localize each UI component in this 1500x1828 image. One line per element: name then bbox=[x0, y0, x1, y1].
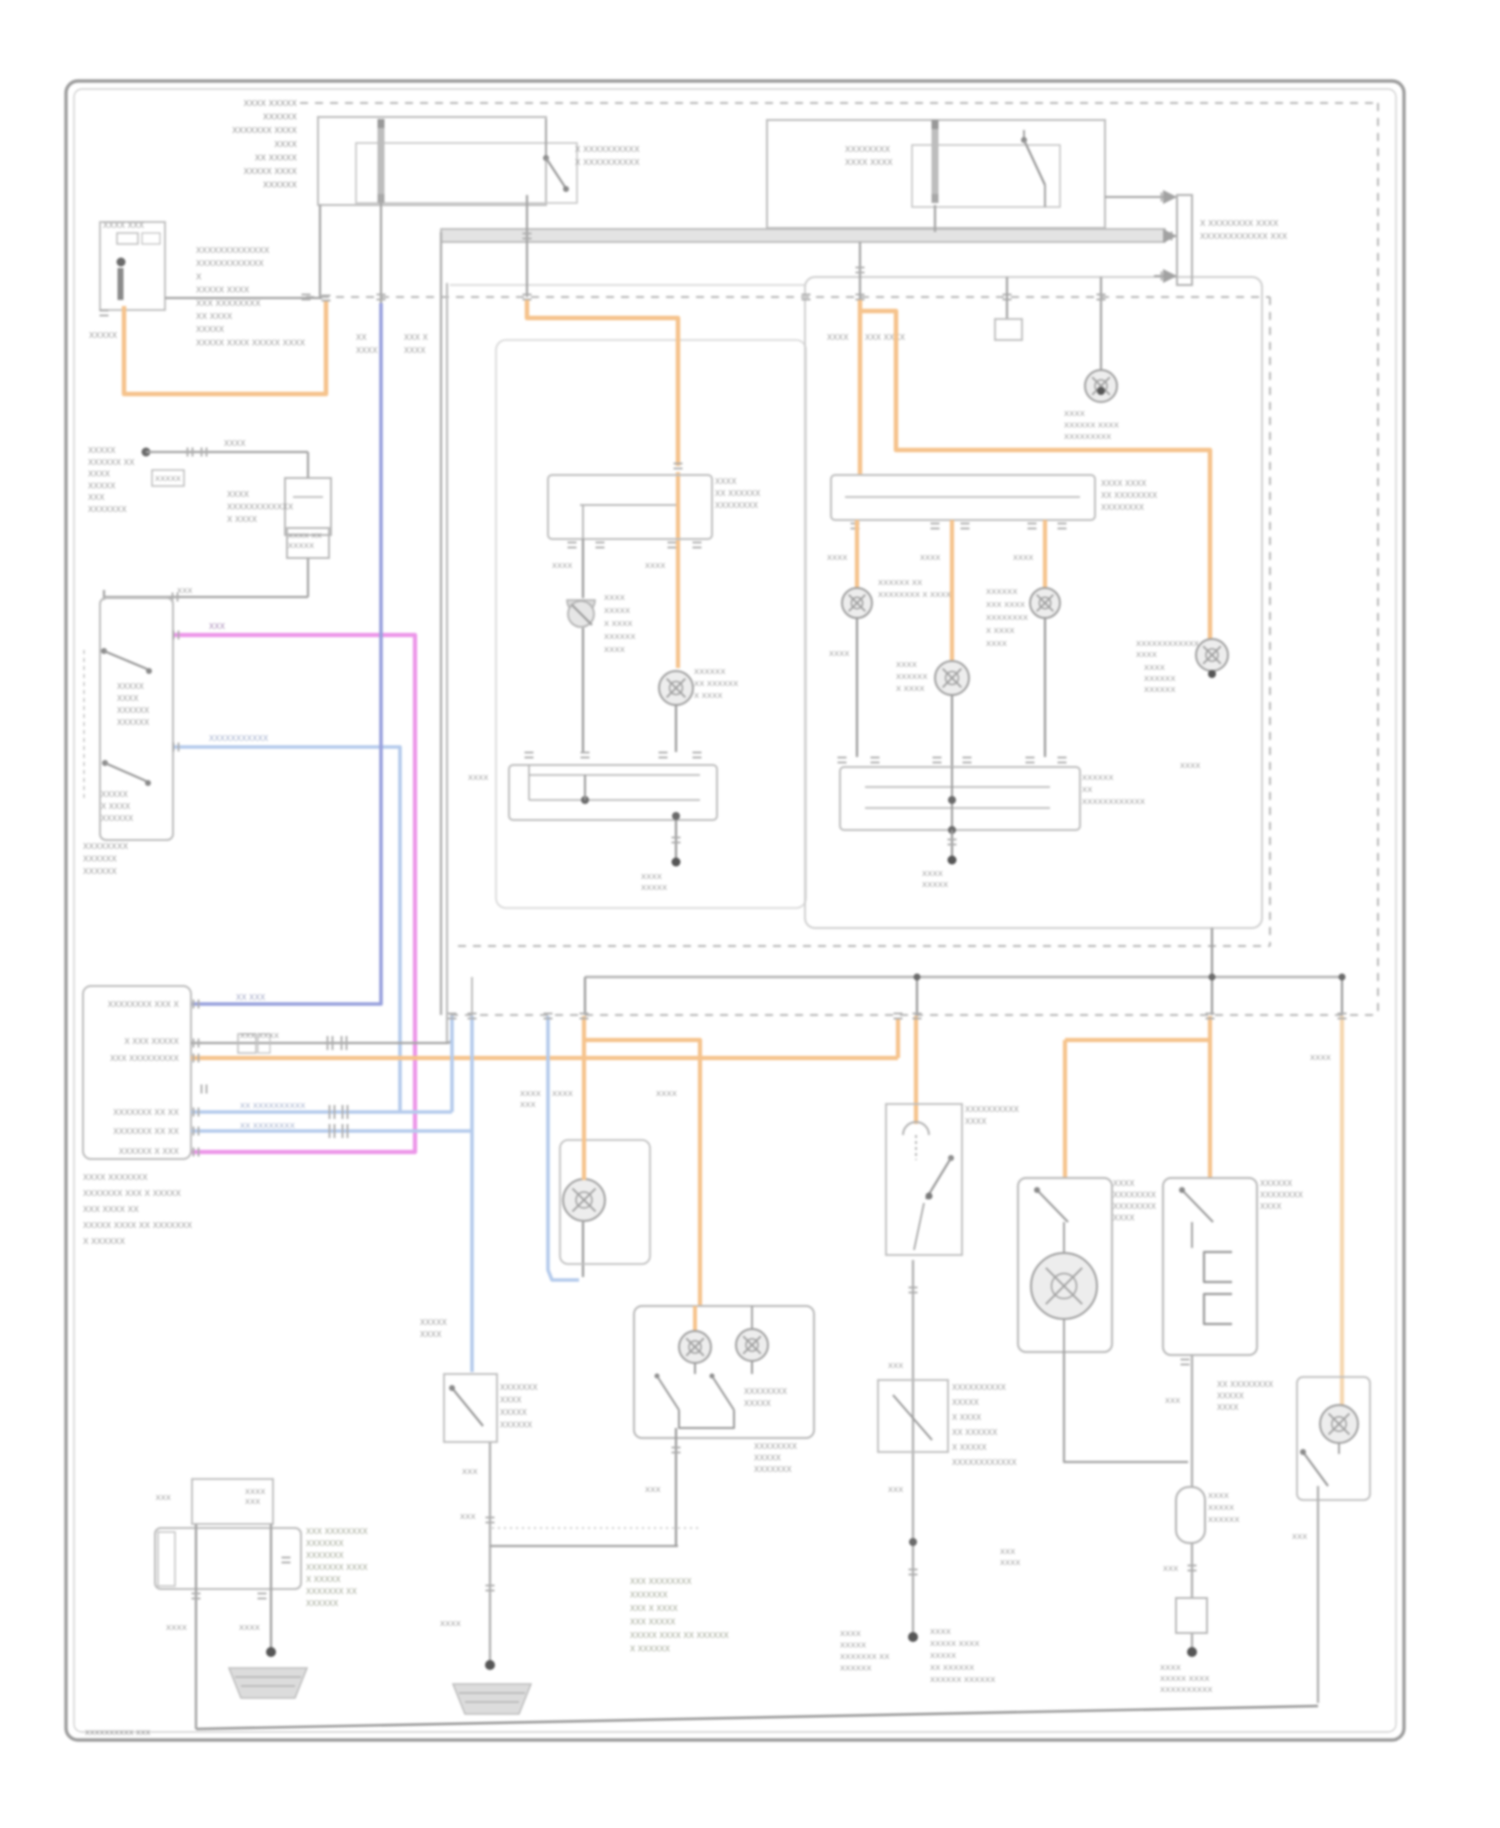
svg-text:XXXXXXXXXXXX: XXXXXXXXXXXX bbox=[1082, 797, 1145, 806]
svg-text:XXXXX: XXXXX bbox=[754, 1454, 782, 1463]
svg-text:XXXXXXX: XXXXXXX bbox=[306, 1539, 344, 1548]
svg-text:XXXXX: XXXXX bbox=[952, 1398, 980, 1407]
svg-text:XXXX XX: XXXX XX bbox=[288, 531, 322, 540]
svg-text:XXXX: XXXX bbox=[1013, 553, 1034, 562]
svg-text:XXXXX XXXX XXXXX XXXX: XXXXX XXXX XXXXX XXXX bbox=[196, 338, 306, 347]
svg-text:XX XXX: XX XXX bbox=[236, 993, 266, 1002]
svg-text:XXXX: XXXX bbox=[840, 1629, 861, 1638]
svg-text:XXXX: XXXX bbox=[965, 1117, 987, 1126]
svg-text:XXXX: XXXX bbox=[224, 439, 246, 448]
svg-text:XXXXXX X XXX: XXXXXX X XXX bbox=[119, 1147, 180, 1156]
svg-text:XX XXXX: XX XXXX bbox=[196, 312, 233, 321]
svg-text:XXXX: XXXX bbox=[468, 773, 489, 782]
svg-text:XXX: XXX bbox=[888, 1485, 903, 1494]
svg-text:XXXXXX: XXXXXX bbox=[1144, 674, 1176, 683]
svg-text:XXXX: XXXX bbox=[930, 1627, 951, 1636]
svg-text:XXX: XXX bbox=[520, 1100, 536, 1109]
svg-text:X XXXXXX: X XXXXXX bbox=[83, 1237, 125, 1246]
svg-text:XXX XXXXX: XXX XXXXX bbox=[630, 1618, 676, 1627]
svg-text:XX XXXXXX: XX XXXXXX bbox=[952, 1428, 998, 1437]
svg-text:XXXXXXXX: XXXXXXXX bbox=[1113, 1191, 1157, 1200]
svg-text:XXXXXX: XXXXXX bbox=[101, 814, 134, 823]
svg-text:XXXX: XXXX bbox=[645, 561, 666, 570]
svg-text:XXXX: XXXX bbox=[1136, 650, 1157, 659]
svg-text:X XXXXXXXXXX: X XXXXXXXXXX bbox=[575, 145, 640, 154]
svg-text:XXX: XXX bbox=[1000, 1547, 1015, 1556]
svg-text:XXX: XXX bbox=[156, 1493, 171, 1502]
svg-text:X XXXXXX: X XXXXXX bbox=[630, 1645, 671, 1654]
svg-text:X XXXXXXXXXX: X XXXXXXXXXX bbox=[575, 158, 640, 167]
svg-text:XXXXXX: XXXXXX bbox=[694, 667, 726, 676]
svg-text:XXXXX: XXXXX bbox=[88, 481, 116, 490]
svg-text:XXXX: XXXX bbox=[920, 553, 941, 562]
svg-text:XXX: XXX bbox=[245, 1497, 260, 1506]
svg-text:XXX: XXX bbox=[177, 586, 193, 595]
svg-text:XXX: XXX bbox=[1292, 1532, 1307, 1541]
svg-text:XXXXXXX XX XX: XXXXXXX XX XX bbox=[113, 1127, 179, 1136]
svg-text:XXXXXX XX: XXXXXX XX bbox=[88, 458, 135, 467]
svg-text:XXXX: XXXX bbox=[520, 1089, 541, 1098]
svg-text:XXX: XXX bbox=[88, 493, 105, 502]
svg-text:XXXXX XXXX: XXXXX XXXX bbox=[244, 167, 298, 176]
svg-text:XXXXXXXXXXXXX: XXXXXXXXXXXXX bbox=[196, 246, 270, 255]
svg-text:XX XXXXXXXX: XX XXXXXXXX bbox=[1101, 491, 1158, 500]
svg-text:XXX: XXX bbox=[460, 1512, 476, 1521]
svg-text:XXXXXXXXXX: XXXXXXXXXX bbox=[965, 1105, 1020, 1114]
svg-text:XXXXXX: XXXXXX bbox=[604, 632, 636, 641]
svg-text:XXXXXX: XXXXXX bbox=[1208, 1515, 1240, 1524]
svg-text:XXXXXXXX: XXXXXXXX bbox=[986, 613, 1028, 622]
svg-text:XXXX: XXXX bbox=[1260, 1202, 1282, 1211]
svg-text:XXXXX: XXXXX bbox=[88, 446, 116, 455]
svg-text:XXXX: XXXX bbox=[1310, 1053, 1331, 1062]
svg-text:XX XXXXXXXXXX: XX XXXXXXXXXX bbox=[240, 1101, 306, 1110]
svg-text:XXXX: XXXX bbox=[274, 140, 297, 149]
svg-text:XXXXXXXXXXXX: XXXXXXXXXXXX bbox=[1136, 639, 1199, 648]
svg-text:XXXXXXX XXX X XXXXX: XXXXXXX XXX X XXXXX bbox=[83, 1189, 181, 1198]
svg-text:XXXXXXX: XXXXXXX bbox=[500, 1383, 538, 1392]
svg-text:XXXXXXXX: XXXXXXXX bbox=[715, 501, 759, 510]
svg-text:XXXXXX: XXXXXX bbox=[263, 113, 297, 122]
svg-text:XXXX: XXXX bbox=[500, 1396, 522, 1405]
svg-text:XXX X XXXX: XXX X XXXX bbox=[630, 1604, 679, 1613]
svg-text:X XXXX: X XXXX bbox=[604, 619, 633, 628]
svg-text:XXXXXXXX X XXXX: XXXXXXXX X XXXX bbox=[878, 590, 951, 599]
svg-text:XXXXXXXXXX: XXXXXXXXXX bbox=[952, 1383, 1007, 1392]
svg-text:XXXXXXX XXXX: XXXXXXX XXXX bbox=[232, 126, 297, 135]
svg-text:XXXXXX: XXXXXX bbox=[83, 855, 117, 864]
svg-text:XXXXXXXXXXXX: XXXXXXXXXXXX bbox=[952, 1458, 1017, 1467]
svg-text:XXXXX: XXXXX bbox=[840, 1641, 866, 1650]
svg-text:XXXXXXXX: XXXXXXXX bbox=[1260, 1191, 1304, 1200]
svg-text:XX XXXXXX: XX XXXXXX bbox=[694, 679, 738, 688]
svg-text:X XXXXXXXX XXXX: X XXXXXXXX XXXX bbox=[1200, 219, 1279, 228]
svg-text:XX: XX bbox=[356, 333, 367, 342]
svg-text:XXXX: XXXX bbox=[1064, 409, 1085, 418]
svg-text:XXXX: XXXX bbox=[1113, 1214, 1135, 1223]
svg-text:XXX XXXXXXXX: XXX XXXXXXXX bbox=[630, 1577, 692, 1586]
svg-text:X XXXXX: X XXXXX bbox=[306, 1575, 341, 1584]
svg-text:XXXX: XXXX bbox=[420, 1330, 442, 1339]
svg-text:XXXXX XXXX: XXXXX XXXX bbox=[196, 286, 250, 295]
svg-text:XXXXXXXX XXX X: XXXXXXXX XXX X bbox=[108, 1000, 180, 1009]
svg-text:XXXXXXX: XXXXXXX bbox=[88, 505, 127, 514]
svg-text:XXXX: XXXX bbox=[356, 346, 378, 355]
svg-text:X XXXXX: X XXXXX bbox=[952, 1443, 987, 1452]
svg-text:XXXX: XXXX bbox=[1180, 761, 1201, 770]
svg-text:XXXXXXX: XXXXXXX bbox=[306, 1551, 344, 1560]
svg-text:XXX XXXX XX: XXX XXXX XX bbox=[83, 1205, 139, 1214]
svg-text:XXXXX: XXXXX bbox=[641, 883, 667, 892]
svg-text:XXXXXXXXXXXX: XXXXXXXXXXXX bbox=[227, 503, 294, 512]
svg-text:XXXXXX XXXX: XXXXXX XXXX bbox=[1064, 421, 1119, 430]
svg-text:X XXX XXXXX: X XXX XXXXX bbox=[124, 1037, 179, 1046]
svg-text:XXXXXXX: XXXXXXX bbox=[630, 1591, 668, 1600]
svg-text:XX XXXXXX: XX XXXXXX bbox=[930, 1663, 974, 1672]
svg-text:XXXXXX: XXXXXX bbox=[83, 867, 117, 876]
svg-text:XXXXXXXXXX XXX: XXXXXXXXXX XXX bbox=[85, 1730, 151, 1737]
svg-text:XXXX: XXXX bbox=[922, 869, 943, 878]
svg-text:XXXX: XXXX bbox=[1160, 1663, 1181, 1672]
svg-text:XXXXX: XXXXX bbox=[744, 1399, 772, 1408]
svg-text:X XXXX: X XXXX bbox=[952, 1413, 982, 1422]
svg-text:XXXXXX: XXXXXX bbox=[986, 587, 1018, 596]
svg-text:XXXXXX: XXXXXX bbox=[896, 672, 928, 681]
svg-text:X XXXX: X XXXX bbox=[896, 684, 925, 693]
svg-text:XXXXX: XXXXX bbox=[101, 790, 129, 799]
svg-text:XXXX: XXXX bbox=[986, 639, 1007, 648]
svg-text:XXXX: XXXX bbox=[641, 872, 662, 881]
svg-text:XXXXX: XXXXX bbox=[288, 541, 314, 550]
svg-text:XXXX: XXXX bbox=[827, 553, 848, 562]
svg-text:XXXXX XXXX: XXXXX XXXX bbox=[1160, 1674, 1210, 1683]
svg-text:XXX: XXX bbox=[209, 622, 226, 631]
svg-text:XXXXX: XXXXX bbox=[420, 1318, 448, 1327]
svg-text:X XXXX: X XXXX bbox=[694, 691, 723, 700]
svg-text:XXXXXXX: XXXXXXX bbox=[754, 1465, 792, 1474]
svg-text:XXXXXXXX: XXXXXXXX bbox=[744, 1387, 788, 1396]
svg-text:XXXXXX: XXXXXX bbox=[1082, 773, 1114, 782]
svg-text:XXX XXXXXXXXX: XXX XXXXXXXXX bbox=[110, 1054, 179, 1063]
svg-text:XXXXXX: XXXXXX bbox=[1144, 685, 1176, 694]
svg-text:XX XXXXX: XX XXXXX bbox=[255, 153, 297, 162]
svg-text:XXXXXXXX: XXXXXXXX bbox=[845, 145, 891, 154]
svg-text:XXXXXXXX: XXXXXXXX bbox=[83, 842, 129, 851]
svg-text:XXX XXXX: XXX XXXX bbox=[865, 333, 906, 342]
svg-text:XXXX: XXXX bbox=[896, 660, 917, 669]
svg-text:XXXXXX XX: XXXXXX XX bbox=[878, 578, 922, 587]
svg-text:XXXXX XXXX XX XXXXXXX: XXXXX XXXX XX XXXXXXX bbox=[83, 1221, 193, 1230]
svg-text:XXX XXXXXXXX: XXX XXXXXXXX bbox=[306, 1527, 368, 1536]
svg-text:XXXX: XXXX bbox=[827, 333, 849, 342]
svg-text:X: X bbox=[196, 272, 202, 281]
svg-text:XXXX: XXXX bbox=[166, 1623, 187, 1632]
svg-text:XXXXXX: XXXXXX bbox=[1260, 1179, 1293, 1188]
svg-text:XXXX: XXXX bbox=[1113, 1179, 1135, 1188]
svg-text:XXXXXX: XXXXXX bbox=[840, 1664, 872, 1673]
svg-text:XXX: XXX bbox=[888, 1361, 903, 1370]
svg-text:XXXXXXX XX XX: XXXXXXX XX XX bbox=[113, 1108, 179, 1117]
svg-text:XXXX: XXXX bbox=[404, 346, 426, 355]
svg-text:XXX: XXX bbox=[462, 1467, 478, 1476]
svg-text:X XXXX: X XXXX bbox=[986, 626, 1015, 635]
svg-text:XXXX: XXXX bbox=[227, 490, 250, 499]
svg-text:XX XXXXXXXX: XX XXXXXXXX bbox=[1217, 1380, 1274, 1389]
svg-text:XXX: XXX bbox=[1163, 1564, 1178, 1573]
svg-text:XXXX: XXXX bbox=[1000, 1558, 1021, 1567]
svg-text:XXXX: XXXX bbox=[604, 593, 625, 602]
svg-text:XXX XXXX: XXX XXXX bbox=[986, 600, 1025, 609]
svg-text:XX XXXXXXXX: XX XXXXXXXX bbox=[240, 1121, 295, 1130]
svg-text:XXXX: XXXX bbox=[239, 1623, 260, 1632]
svg-text:XXXX: XXXX bbox=[1208, 1491, 1229, 1500]
svg-text:XXXXXXXXX: XXXXXXXXX bbox=[1064, 432, 1111, 441]
svg-text:XXXXXXXXXXXX XXX: XXXXXXXXXXXX XXX bbox=[1200, 232, 1288, 241]
svg-text:XXXXX: XXXXX bbox=[930, 1651, 956, 1660]
svg-text:XXXX: XXXX bbox=[440, 1619, 461, 1628]
svg-text:XXXXXXXX: XXXXXXXX bbox=[754, 1442, 798, 1451]
svg-text:XXXXX: XXXXX bbox=[500, 1408, 528, 1417]
svg-text:XXXXXX: XXXXXX bbox=[500, 1421, 533, 1430]
svg-text:XXX XXXX: XXX XXXX bbox=[240, 1031, 279, 1040]
svg-text:XXXXXXXXXXXX: XXXXXXXXXXXX bbox=[196, 259, 264, 268]
svg-text:XXXXX: XXXXX bbox=[604, 606, 630, 615]
svg-text:XXXX: XXXX bbox=[715, 477, 737, 486]
svg-text:XXXXX: XXXXX bbox=[922, 880, 948, 889]
svg-text:XXXXXX: XXXXXX bbox=[306, 1599, 339, 1608]
svg-text:XXXXXX: XXXXXX bbox=[117, 718, 150, 727]
svg-text:XXXX XXXX: XXXX XXXX bbox=[845, 158, 893, 167]
svg-text:X XXXX: X XXXX bbox=[101, 802, 131, 811]
svg-text:XXXXX: XXXXX bbox=[155, 474, 181, 483]
svg-text:XXX: XXX bbox=[645, 1485, 661, 1494]
svg-text:XXXX: XXXX bbox=[1217, 1403, 1239, 1412]
svg-text:XXXX: XXXX bbox=[1144, 663, 1165, 672]
svg-text:XXXXXXXXXXX: XXXXXXXXXXX bbox=[209, 734, 269, 743]
svg-text:XXXXX XXXX XX XXXXXX: XXXXX XXXX XX XXXXXX bbox=[630, 1631, 730, 1640]
svg-text:XXXXX: XXXXX bbox=[196, 325, 225, 334]
svg-text:XXXX: XXXX bbox=[656, 1089, 677, 1098]
svg-text:XXXX: XXXX bbox=[829, 649, 850, 658]
svg-text:XX: XX bbox=[1082, 785, 1093, 794]
svg-text:XXXXX XXXX: XXXXX XXXX bbox=[930, 1639, 980, 1648]
svg-text:XXXXXXX XXXX: XXXXXXX XXXX bbox=[306, 1563, 368, 1572]
svg-text:XXXXXX: XXXXXX bbox=[117, 706, 150, 715]
svg-text:XXXX: XXXX bbox=[552, 561, 573, 570]
svg-text:XXXXXXXXXX: XXXXXXXXXX bbox=[1160, 1685, 1213, 1694]
svg-text:XXX XXXXXXXX: XXX XXXXXXXX bbox=[196, 299, 261, 308]
svg-text:XX XXXXXX: XX XXXXXX bbox=[715, 489, 761, 498]
svg-text:XXXX: XXXX bbox=[604, 645, 625, 654]
svg-text:XXXX: XXXX bbox=[88, 470, 111, 479]
svg-text:XXX X: XXX X bbox=[404, 333, 429, 342]
svg-text:XXXX XXXXXXX: XXXX XXXXXXX bbox=[83, 1173, 148, 1182]
svg-text:XXXX: XXXX bbox=[117, 694, 139, 703]
svg-text:XXXXXXXX: XXXXXXXX bbox=[1101, 503, 1145, 512]
svg-text:XXXXXXX XX: XXXXXXX XX bbox=[306, 1587, 358, 1596]
svg-text:X XXXX: X XXXX bbox=[227, 515, 258, 524]
svg-text:XXXXXXX XX: XXXXXXX XX bbox=[840, 1652, 890, 1661]
svg-text:XXX: XXX bbox=[1165, 1396, 1180, 1405]
svg-text:XXXX XXX: XXXX XXX bbox=[103, 221, 145, 230]
svg-text:XXXX XXXX: XXXX XXXX bbox=[1101, 479, 1147, 488]
svg-text:XXXXX: XXXXX bbox=[1217, 1392, 1245, 1401]
svg-text:XXXXX: XXXXX bbox=[1208, 1503, 1234, 1512]
svg-text:XXXX: XXXX bbox=[552, 1089, 573, 1098]
svg-text:XXXX XXXXX: XXXX XXXXX bbox=[244, 99, 298, 108]
svg-text:XXXXXX XXXXXX: XXXXXX XXXXXX bbox=[930, 1675, 996, 1684]
svg-text:XXXXXX: XXXXXX bbox=[263, 181, 297, 190]
svg-text:XXXX: XXXX bbox=[245, 1487, 266, 1496]
svg-text:XXXXX: XXXXX bbox=[89, 331, 118, 340]
svg-text:XXXXXXXX: XXXXXXXX bbox=[1113, 1202, 1157, 1211]
svg-text:XXXXX: XXXXX bbox=[117, 682, 145, 691]
